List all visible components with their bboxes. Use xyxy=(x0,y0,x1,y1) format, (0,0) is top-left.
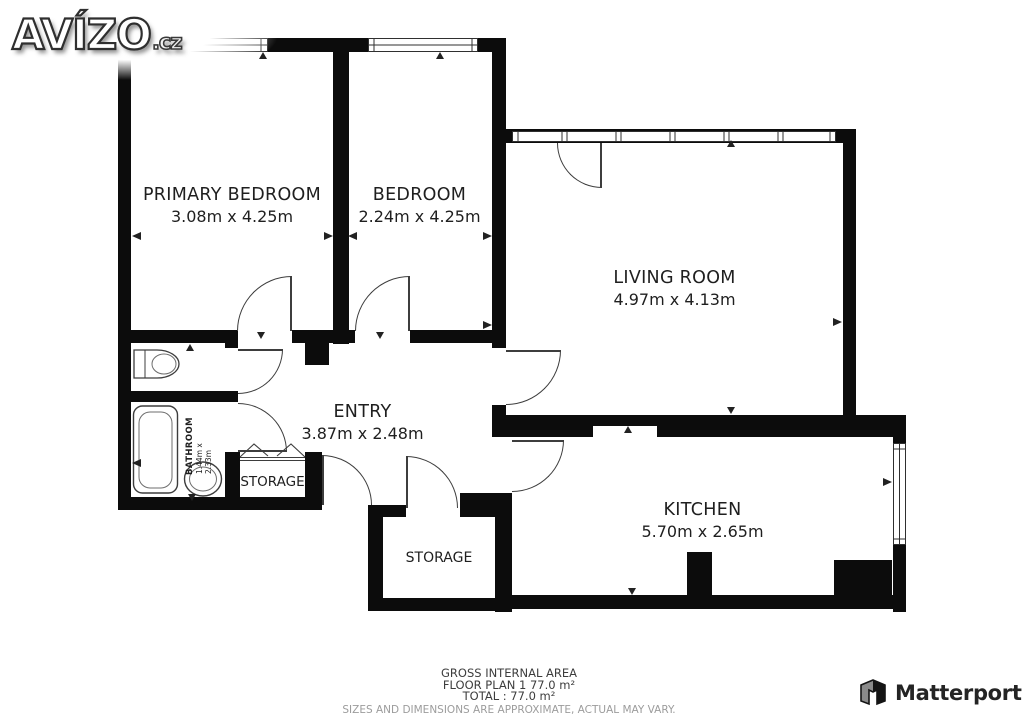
door-arc-primary-bedroom xyxy=(237,276,292,331)
door-leaf xyxy=(290,276,292,331)
wall xyxy=(131,391,238,402)
room-dimensions: 1.44m x 2.33m xyxy=(195,418,213,474)
avizo-logo-tld: .cz xyxy=(152,30,182,54)
door-arc-entrance xyxy=(322,455,372,505)
wall xyxy=(118,330,237,343)
window xyxy=(368,38,478,52)
toilet-icon xyxy=(134,350,179,378)
room-label-bedroom: BEDROOM 2.24m x 4.25m xyxy=(347,185,492,227)
room-name: BEDROOM xyxy=(347,185,492,206)
wall xyxy=(410,330,506,343)
room-dimensions: 5.70m x 2.65m xyxy=(512,521,893,542)
door-leaf xyxy=(506,350,561,352)
avizo-logo: AVÍZO.cz xyxy=(12,10,182,59)
room-name: LIVING ROOM xyxy=(506,268,843,289)
room-label-storage-hall: STORAGE xyxy=(238,474,307,490)
door-arc-storage-lower xyxy=(406,456,458,508)
floorplan-page: PRIMARY BEDROOM 3.08m x 4.25m BEDROOM 2.… xyxy=(0,0,1024,724)
matterport-brand: Matterport xyxy=(858,678,1022,708)
avizo-logo-text: AVÍZO xyxy=(12,10,151,59)
room-dimensions: 4.97m x 4.13m xyxy=(506,289,843,310)
plan-summary: GROSS INTERNAL AREA FLOOR PLAN 1 77.0 m²… xyxy=(309,668,709,716)
room-label-kitchen: KITCHEN 5.70m x 2.65m xyxy=(512,500,893,542)
wall-opening xyxy=(593,426,657,437)
wall xyxy=(460,493,512,517)
door-arc-balcony xyxy=(557,143,602,188)
room-dimensions: 3.08m x 4.25m xyxy=(131,206,333,227)
wall xyxy=(495,595,906,609)
door-leaf xyxy=(322,455,324,505)
wall xyxy=(292,330,355,343)
door-leaf xyxy=(406,456,408,508)
wall xyxy=(305,343,329,365)
room-dimensions: 3.87m x 2.48m xyxy=(240,423,485,444)
door-arc-kitchen xyxy=(512,440,564,492)
room-label-living-room: LIVING ROOM 4.97m x 4.13m xyxy=(506,268,843,310)
wall xyxy=(843,129,856,437)
wall xyxy=(893,415,906,443)
room-name: KITCHEN xyxy=(512,500,893,521)
window xyxy=(512,131,836,142)
wall xyxy=(492,415,906,437)
wall xyxy=(492,405,506,417)
door-leaf xyxy=(238,450,287,452)
wall xyxy=(368,598,512,611)
wall xyxy=(492,38,506,348)
room-label-primary-bedroom: PRIMARY BEDROOM 3.08m x 4.25m xyxy=(131,185,333,227)
matterport-wordmark: Matterport xyxy=(895,681,1022,705)
matterport-icon xyxy=(858,678,888,708)
room-name: BATHROOM xyxy=(185,417,195,475)
door-arc-bedroom xyxy=(355,276,410,331)
room-dimensions: 2.24m x 4.25m xyxy=(347,206,492,227)
room-label-entry: ENTRY 3.87m x 2.48m xyxy=(240,402,485,444)
window xyxy=(893,443,906,545)
total-area: TOTAL : 77.0 m² xyxy=(309,691,709,703)
wall xyxy=(305,452,322,510)
wall xyxy=(368,505,383,611)
kitchen-fixture-block xyxy=(687,552,712,595)
wall xyxy=(225,331,238,348)
door-leaf xyxy=(512,440,564,442)
door-arc-living-room xyxy=(506,350,561,405)
disclaimer: SIZES AND DIMENSIONS ARE APPROXIMATE, AC… xyxy=(309,704,709,716)
kitchen-fixture-block xyxy=(834,560,892,595)
room-name: PRIMARY BEDROOM xyxy=(131,185,333,206)
room-name: ENTRY xyxy=(240,402,485,423)
wall xyxy=(118,38,131,510)
door-leaf xyxy=(600,143,602,188)
door-arc-wc xyxy=(238,349,283,394)
wall xyxy=(368,505,406,517)
room-label-bathroom: BATHROOM 1.44m x 2.33m xyxy=(171,418,227,474)
wall xyxy=(118,497,322,510)
room-label-storage-lower: STORAGE xyxy=(383,550,495,566)
wall xyxy=(266,38,370,52)
door-leaf xyxy=(408,276,410,331)
door-leaf xyxy=(238,349,283,351)
